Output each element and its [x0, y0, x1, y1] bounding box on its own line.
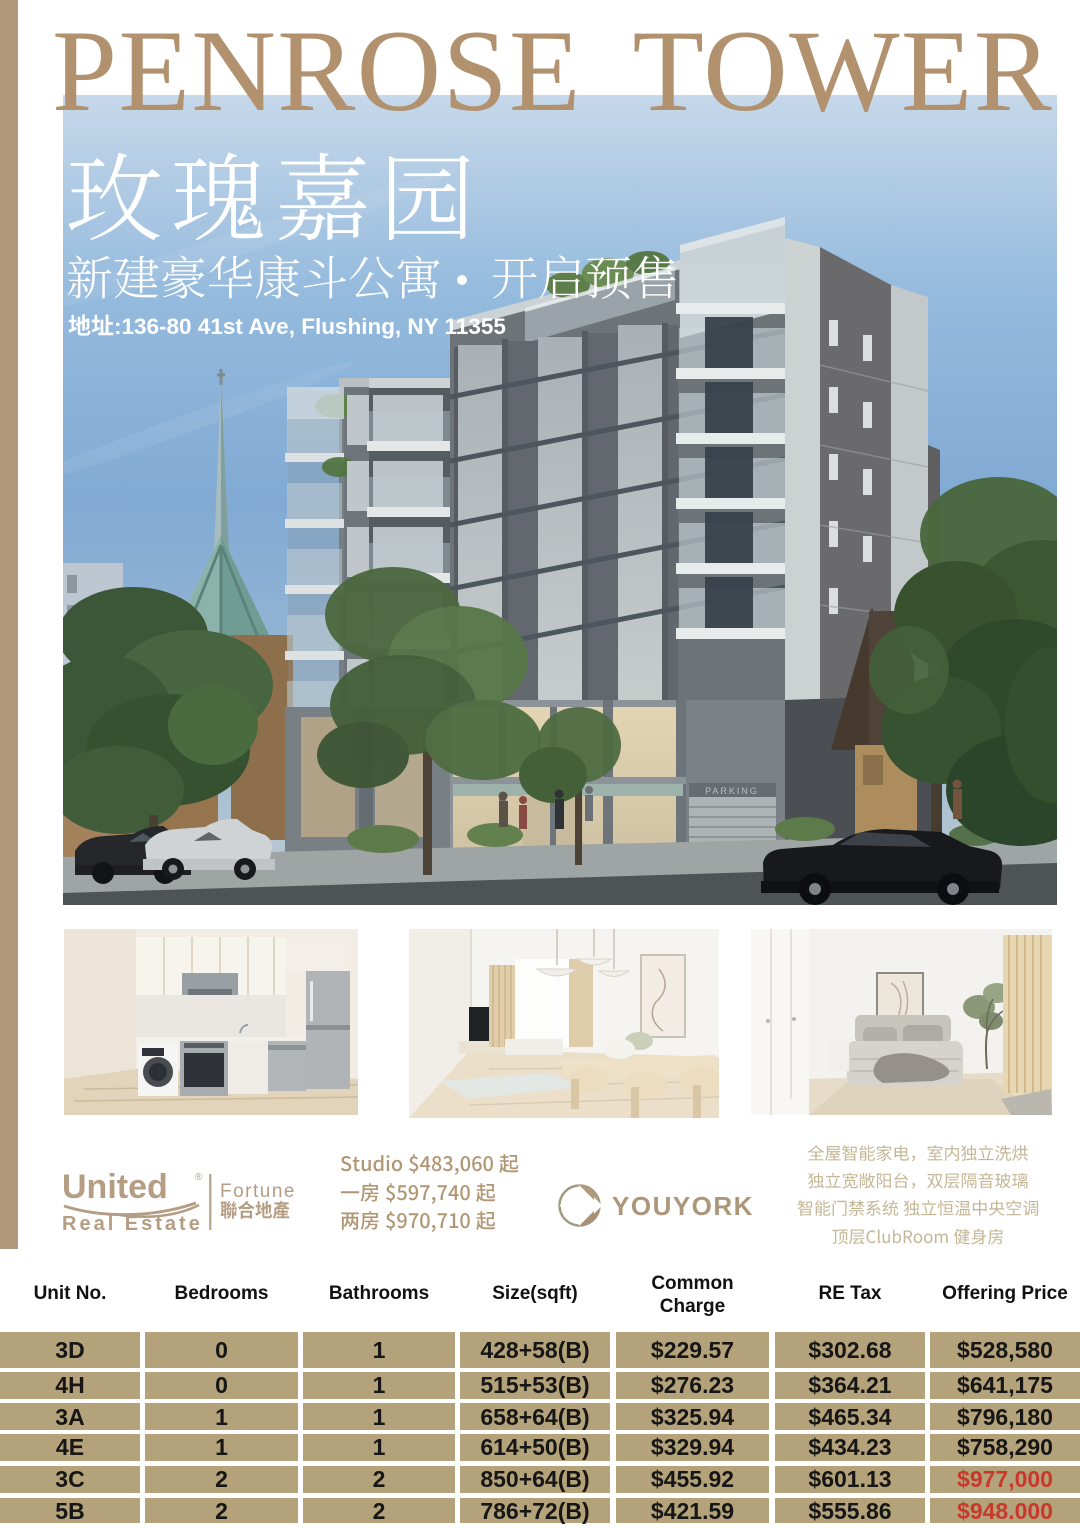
svg-text:Fortune: Fortune	[220, 1181, 296, 1202]
svg-text:®: ®	[195, 1172, 203, 1183]
svg-text:United: United	[62, 1168, 168, 1206]
svg-text:PARKING: PARKING	[705, 786, 759, 796]
svg-text:YOUYORK: YOUYORK	[612, 1191, 754, 1221]
svg-text:Real Estate: Real Estate	[62, 1213, 203, 1235]
svg-text::136-80 41st Ave, Flushing, NY: :136-80 41st Ave, Flushing, NY 11355	[114, 314, 506, 339]
